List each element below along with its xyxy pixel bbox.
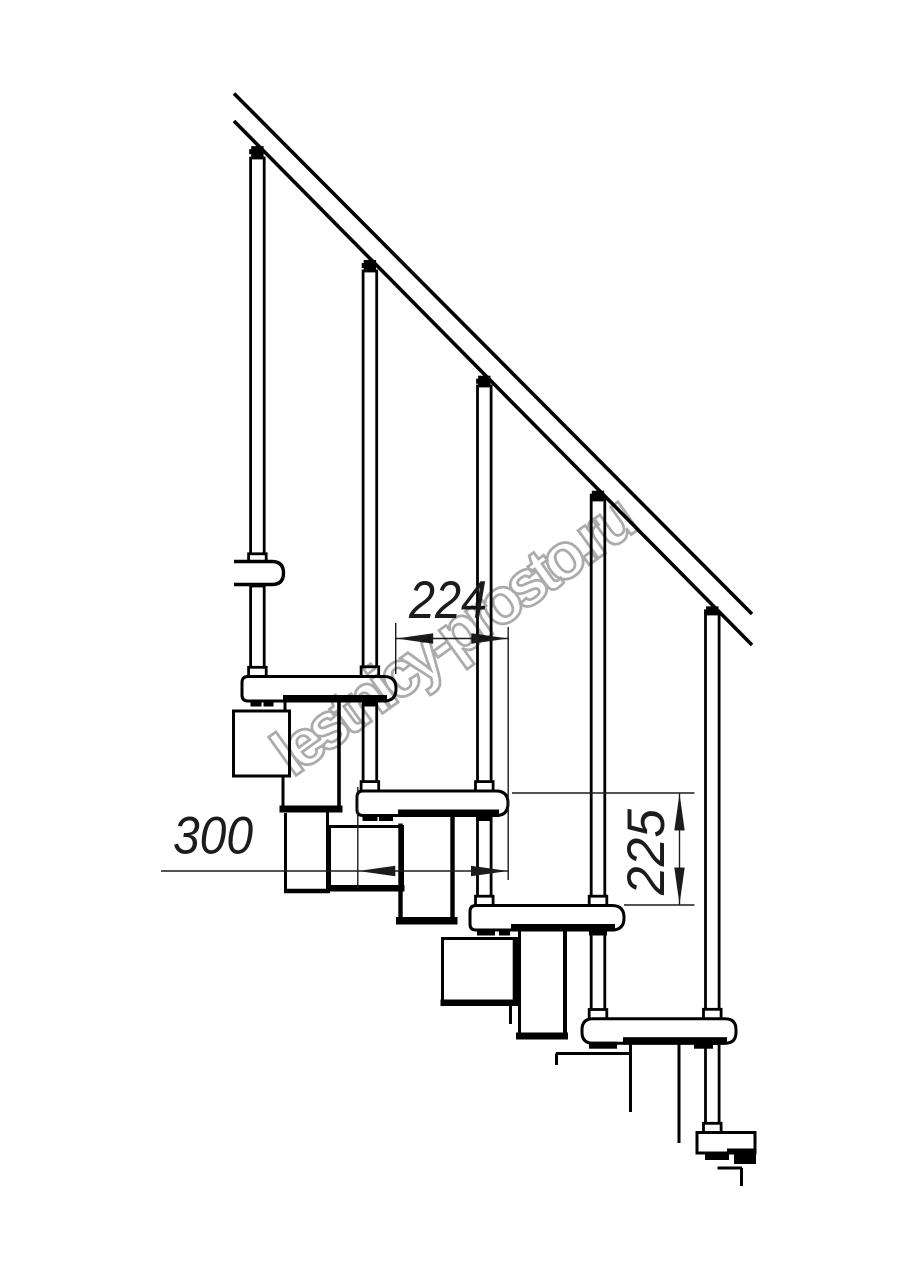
- svg-text:225: 225: [617, 808, 676, 895]
- svg-text:300: 300: [173, 807, 253, 866]
